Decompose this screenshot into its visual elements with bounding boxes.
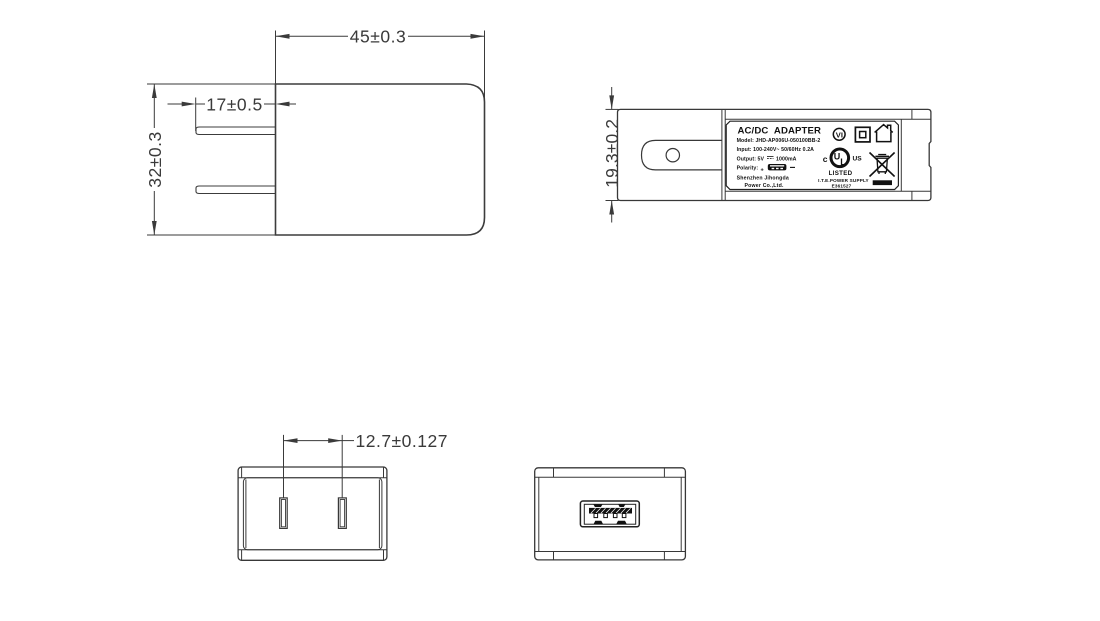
svg-text:Output: 5V: Output: 5V xyxy=(737,156,765,162)
svg-text:Shenzhen Jihongda: Shenzhen Jihongda xyxy=(737,176,789,182)
svg-text:32±0.3: 32±0.3 xyxy=(145,131,165,187)
svg-text:E361527: E361527 xyxy=(832,184,852,189)
svg-text:Polarity:: Polarity: xyxy=(737,166,759,172)
svg-text:I.T.E.POWER SUPPLY: I.T.E.POWER SUPPLY xyxy=(818,178,869,183)
svg-text:LISTED: LISTED xyxy=(829,170,853,177)
svg-text:US: US xyxy=(853,156,863,163)
svg-text:Model: JHD-AP006U-050100BB-2: Model: JHD-AP006U-050100BB-2 xyxy=(737,138,821,144)
svg-text:AC/DC ADAPTER: AC/DC ADAPTER xyxy=(738,126,821,137)
svg-text:1000mA: 1000mA xyxy=(776,156,797,162)
svg-text:17±0.5: 17±0.5 xyxy=(206,94,262,114)
svg-text:+: + xyxy=(761,168,764,174)
svg-text:c: c xyxy=(823,154,828,164)
svg-text:VI: VI xyxy=(836,130,843,139)
svg-text:Input: 100-240V~ 50/60Hz 0.2: Input: 100-240V~ 50/60Hz 0.2A xyxy=(737,147,815,153)
svg-text:Power Co.,Ltd.: Power Co.,Ltd. xyxy=(745,183,784,189)
svg-text:12.7±0.127: 12.7±0.127 xyxy=(356,431,448,451)
svg-text:19.3±0.2: 19.3±0.2 xyxy=(602,119,622,188)
svg-text:L: L xyxy=(840,157,846,167)
svg-text:45±0.3: 45±0.3 xyxy=(350,27,406,47)
